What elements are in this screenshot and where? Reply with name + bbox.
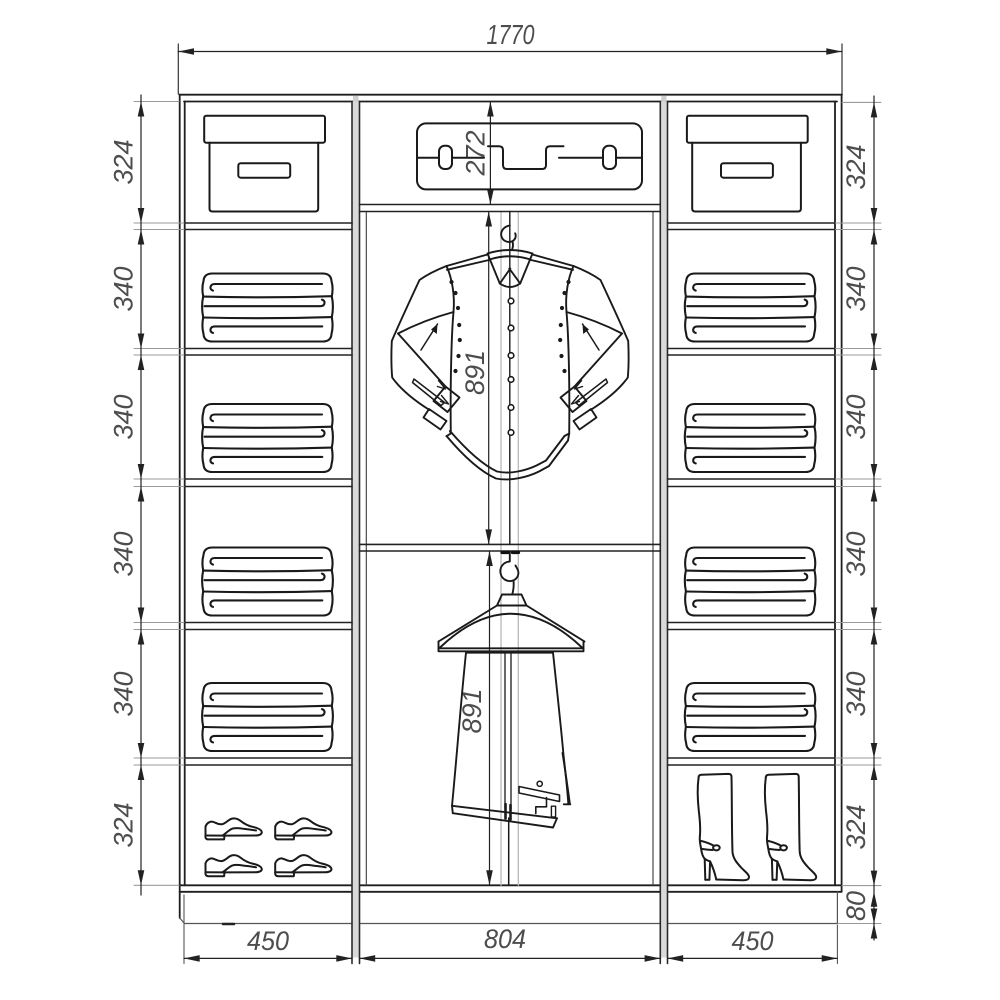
svg-text:340: 340	[841, 531, 871, 576]
svg-text:804: 804	[484, 924, 526, 954]
svg-text:1770: 1770	[487, 19, 535, 50]
svg-text:80: 80	[841, 891, 871, 921]
svg-text:450: 450	[732, 926, 774, 956]
svg-text:324: 324	[109, 139, 139, 184]
svg-text:272: 272	[461, 130, 491, 176]
svg-text:891: 891	[460, 350, 490, 395]
svg-text:324: 324	[841, 804, 871, 849]
svg-text:340: 340	[841, 266, 871, 311]
svg-text:340: 340	[841, 671, 871, 716]
svg-text:324: 324	[109, 802, 139, 847]
svg-text:340: 340	[109, 266, 139, 311]
svg-text:340: 340	[841, 394, 871, 439]
svg-text:450: 450	[247, 926, 289, 956]
svg-text:340: 340	[109, 531, 139, 576]
svg-text:340: 340	[109, 671, 139, 716]
svg-text:340: 340	[109, 394, 139, 439]
svg-text:324: 324	[841, 144, 871, 189]
